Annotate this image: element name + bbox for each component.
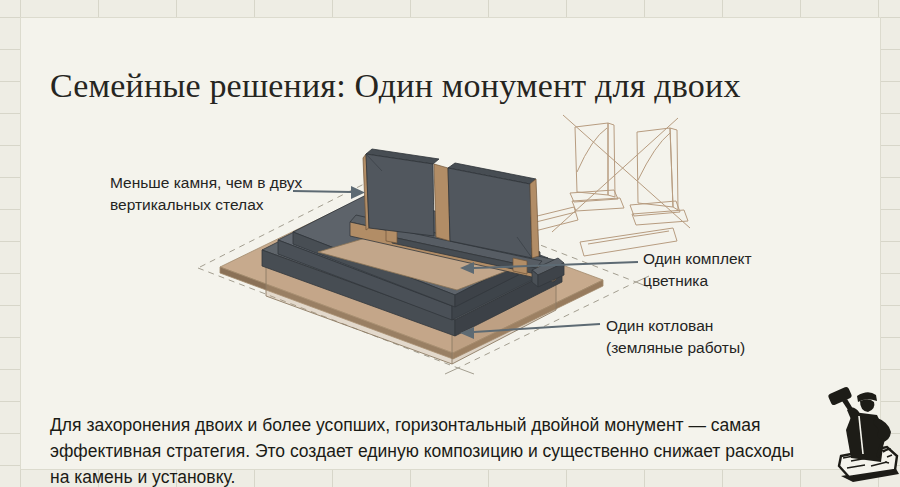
annotation-less-stone: Меньше камня, чем в двух вертикальных ст… xyxy=(110,172,310,216)
body-paragraph: Для захоронения двоих и более усопших, г… xyxy=(50,412,798,487)
stele-gap-strip xyxy=(434,164,450,241)
right-stele xyxy=(448,163,539,258)
cross-out-x-icon xyxy=(552,115,690,232)
annotation-flowerbed: Один комплект цветника xyxy=(643,248,803,292)
stonemason-logo-icon xyxy=(813,386,900,484)
left-stele xyxy=(363,149,439,236)
annotation-pit: Один котлован (земляные работы) xyxy=(606,315,791,359)
